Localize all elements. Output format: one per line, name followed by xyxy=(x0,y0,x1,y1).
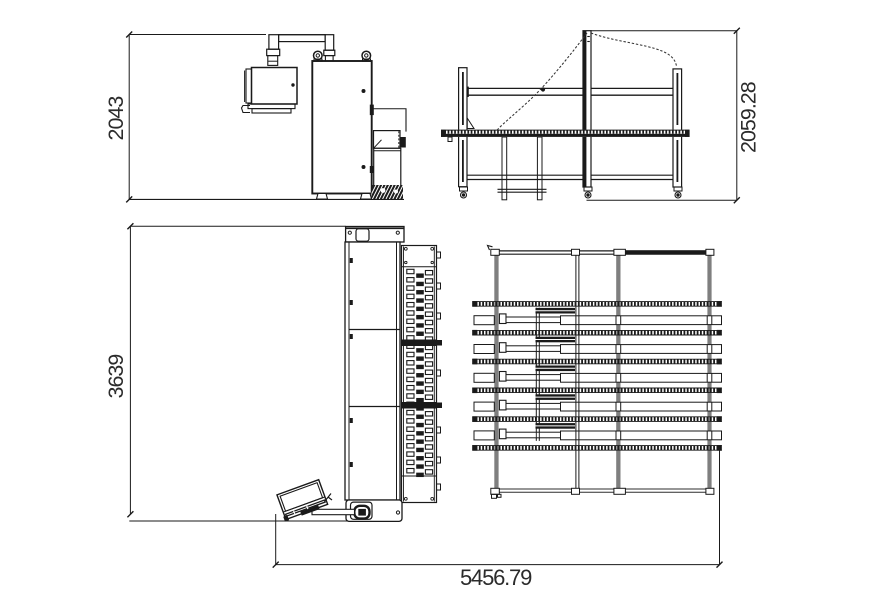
svg-text:2043: 2043 xyxy=(104,96,128,141)
svg-text:2059.28: 2059.28 xyxy=(737,81,761,153)
svg-text:5456.79: 5456.79 xyxy=(460,565,532,590)
svg-text:3639: 3639 xyxy=(104,355,128,399)
